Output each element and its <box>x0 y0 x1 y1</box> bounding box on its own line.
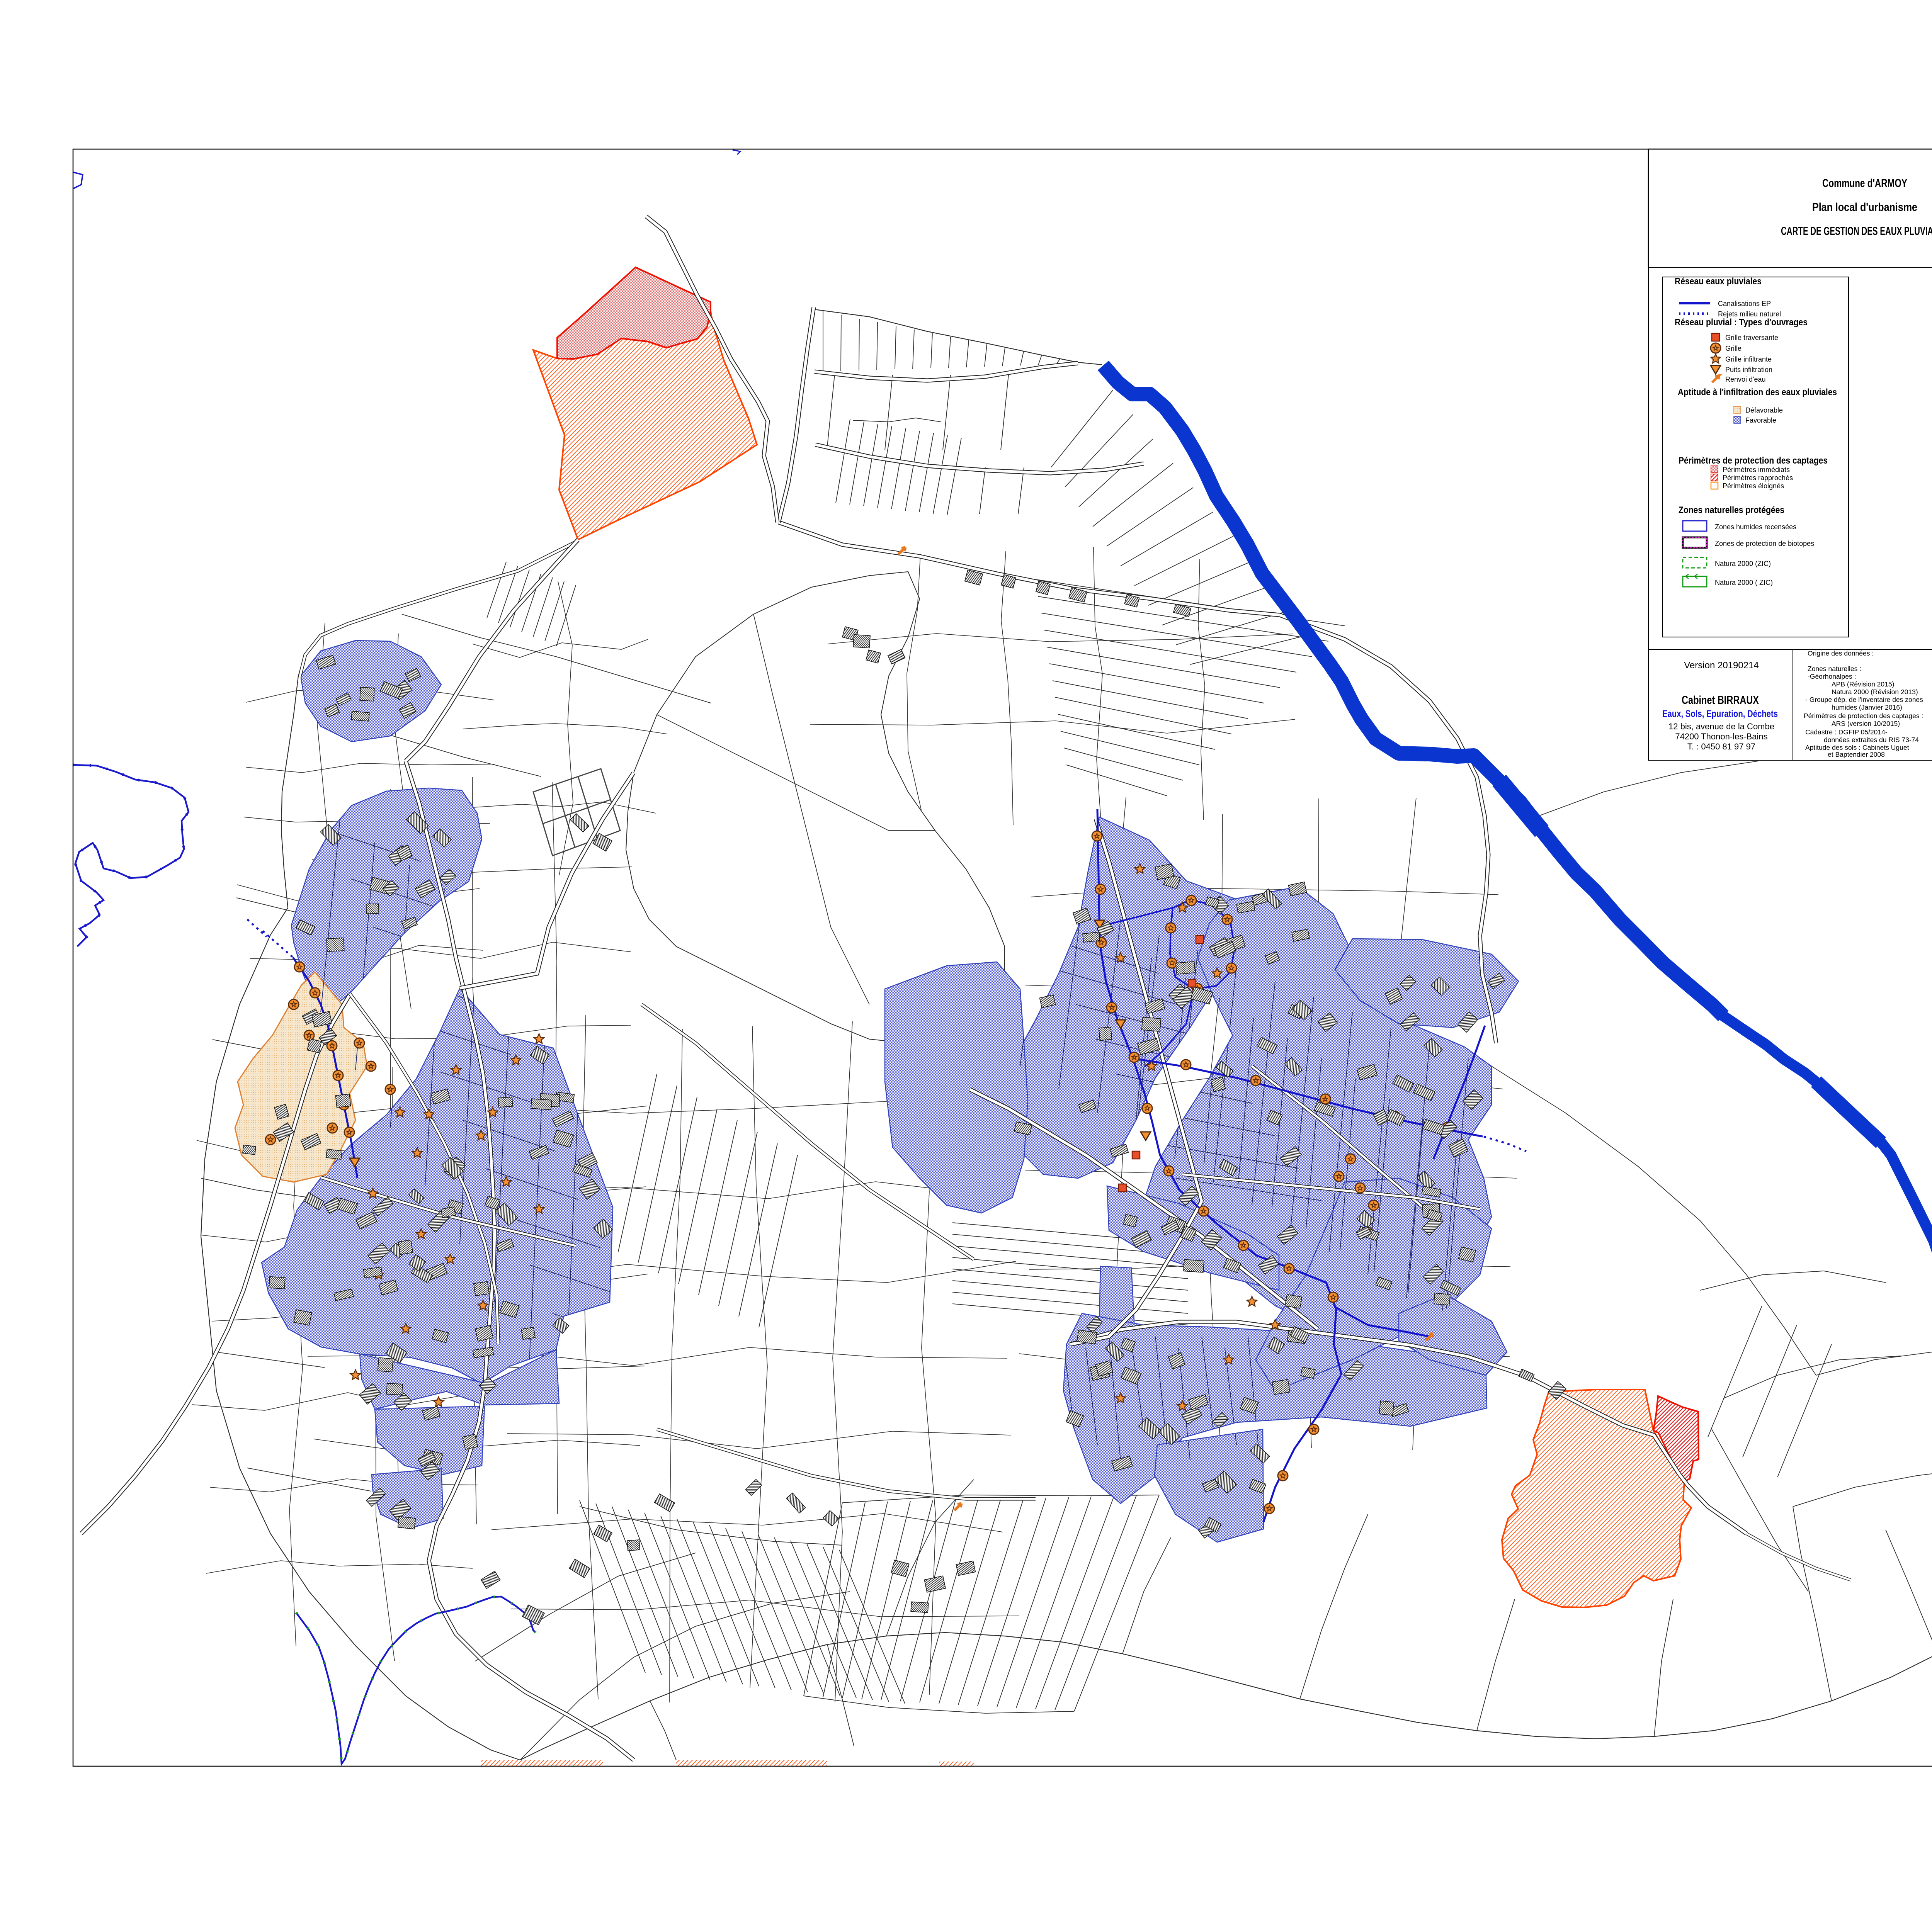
svg-text:Zones humides recensées: Zones humides recensées <box>1715 523 1796 531</box>
svg-text:Version 20190214: Version 20190214 <box>1684 660 1759 671</box>
svg-text:Périmètres de protection des c: Périmètres de protection des captages : <box>1804 712 1923 720</box>
svg-text:Puits infiltration: Puits infiltration <box>1725 366 1772 374</box>
svg-text:Aptitude à l'infiltration des: Aptitude à l'infiltration des eaux pluvi… <box>1678 387 1837 398</box>
svg-text:Cabinet BIRRAUX: Cabinet BIRRAUX <box>1682 694 1759 707</box>
svg-text:et Baptendier 2008: et Baptendier 2008 <box>1828 751 1885 758</box>
svg-text:- Groupe dép. de l'inventaire: - Groupe dép. de l'inventaire des zones <box>1805 696 1923 703</box>
svg-text:Périmètres immédiats: Périmètres immédiats <box>1723 466 1790 474</box>
svg-text:Eaux, Sols, Epuration, Déchets: Eaux, Sols, Epuration, Déchets <box>1662 708 1778 719</box>
svg-text:Réseau pluvial : Types d'ouvra: Réseau pluvial : Types d'ouvrages <box>1675 317 1808 328</box>
svg-text:Renvoi d'eau: Renvoi d'eau <box>1725 375 1766 383</box>
svg-text:Favorable: Favorable <box>1745 416 1776 424</box>
svg-text:12 bis, avenue de la Combe: 12 bis, avenue de la Combe <box>1668 722 1774 731</box>
svg-text:Réseau eaux pluviales: Réseau eaux pluviales <box>1675 276 1762 287</box>
svg-text:Commune d'ARMOY: Commune d'ARMOY <box>1822 177 1907 190</box>
svg-text:Périmètres éloignés: Périmètres éloignés <box>1723 482 1784 490</box>
svg-text:CARTE DE GESTION DES EAUX PLUV: CARTE DE GESTION DES EAUX PLUVIALES <box>1781 225 1932 238</box>
svg-text:Cadastre : DGFIP 05/2014-: Cadastre : DGFIP 05/2014- <box>1805 728 1888 736</box>
svg-text:humides (Janvier 2016): humides (Janvier 2016) <box>1832 703 1902 711</box>
svg-text:-Géorhonalpes :: -Géorhonalpes : <box>1808 673 1856 680</box>
svg-text:Défavorable: Défavorable <box>1745 406 1783 414</box>
svg-text:Natura 2000 ( ZIC): Natura 2000 ( ZIC) <box>1715 579 1773 586</box>
svg-text:Canalisations EP: Canalisations EP <box>1718 300 1771 307</box>
svg-text:Natura 2000 (ZIC): Natura 2000 (ZIC) <box>1715 560 1771 567</box>
svg-text:Zones naturelles :: Zones naturelles : <box>1808 665 1861 673</box>
svg-text:Grille traversante: Grille traversante <box>1725 334 1778 341</box>
svg-text:Grille: Grille <box>1725 345 1742 352</box>
svg-text:données extraites du RIS 73-74: données extraites du RIS 73-74 <box>1824 736 1919 744</box>
svg-text:ARS (version 10/2015): ARS (version 10/2015) <box>1832 720 1900 727</box>
svg-text:Rejets milieu naturel: Rejets milieu naturel <box>1718 310 1781 318</box>
svg-text:Périmètres rapprochés: Périmètres rapprochés <box>1723 474 1793 482</box>
svg-text:Aptitude des sols : Cabinets U: Aptitude des sols : Cabinets Uguet <box>1805 744 1909 751</box>
svg-text:Zones de protection de biotope: Zones de protection de biotopes <box>1715 540 1814 547</box>
svg-text:APB (Révision 2015): APB (Révision 2015) <box>1832 680 1894 688</box>
svg-text:Périmètres de protection des c: Périmètres de protection des captages <box>1679 455 1828 466</box>
svg-text:Origine des données :: Origine des données : <box>1808 649 1874 657</box>
svg-text:Zones naturelles protégées: Zones naturelles protégées <box>1679 505 1784 515</box>
svg-text:Grille infiltrante: Grille infiltrante <box>1725 355 1772 363</box>
svg-text:Natura 2000 (Révision 2013): Natura 2000 (Révision 2013) <box>1832 688 1918 696</box>
svg-text:Plan local d'urbanisme: Plan local d'urbanisme <box>1812 201 1917 214</box>
svg-text:T. : 0450 81 97 97: T. : 0450 81 97 97 <box>1687 742 1755 751</box>
svg-text:74200 Thonon-les-Bains: 74200 Thonon-les-Bains <box>1675 732 1767 741</box>
